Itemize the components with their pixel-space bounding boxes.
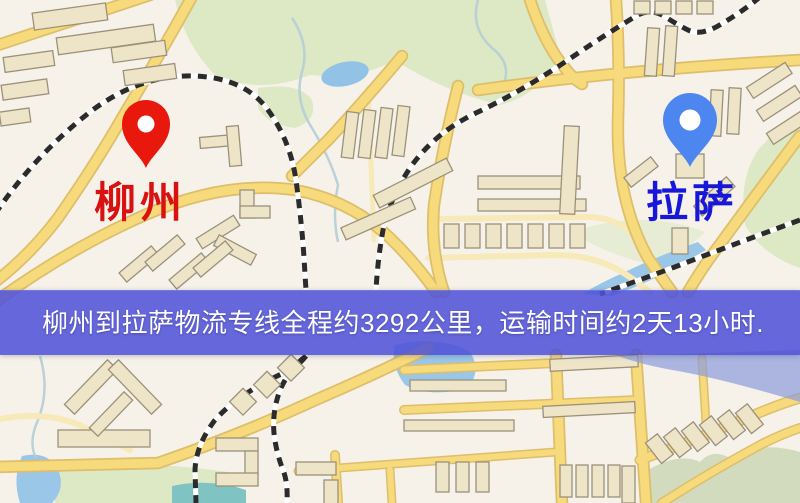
route-info-text: 柳州到拉萨物流专线全程约3292公里，运输时间约2天13小时. <box>42 310 764 336</box>
origin-label: 柳州 <box>94 178 186 227</box>
map-view[interactable]: 柳州 拉萨 柳州到拉萨物流专线全程约3292公里，运输时间约2天13小时. <box>0 0 800 503</box>
route-info-banner: 柳州到拉萨物流专线全程约3292公里，运输时间约2天13小时. <box>0 290 800 355</box>
origin-pin-hole <box>138 116 155 133</box>
map-canvas[interactable]: 柳州 拉萨 <box>0 0 800 503</box>
destination-pin-hole <box>680 110 701 131</box>
destination-label: 拉萨 <box>646 178 738 227</box>
